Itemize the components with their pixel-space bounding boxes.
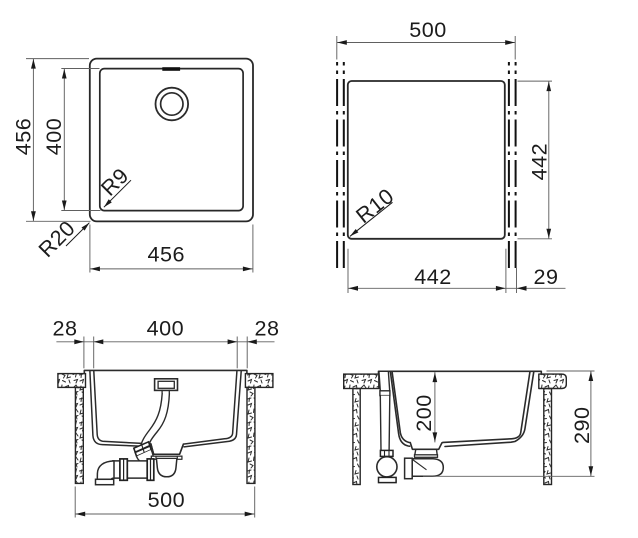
svg-text:442: 442 <box>414 264 452 289</box>
svg-text:29: 29 <box>533 264 558 289</box>
svg-text:456: 456 <box>10 118 35 156</box>
svg-text:200: 200 <box>411 394 436 432</box>
svg-text:28: 28 <box>254 316 279 341</box>
svg-text:500: 500 <box>409 17 447 42</box>
svg-text:400: 400 <box>41 118 66 156</box>
svg-text:28: 28 <box>52 316 77 341</box>
svg-text:442: 442 <box>526 143 551 181</box>
svg-text:500: 500 <box>148 487 186 512</box>
svg-text:456: 456 <box>148 241 186 266</box>
svg-text:400: 400 <box>147 316 185 341</box>
svg-text:290: 290 <box>569 406 594 444</box>
